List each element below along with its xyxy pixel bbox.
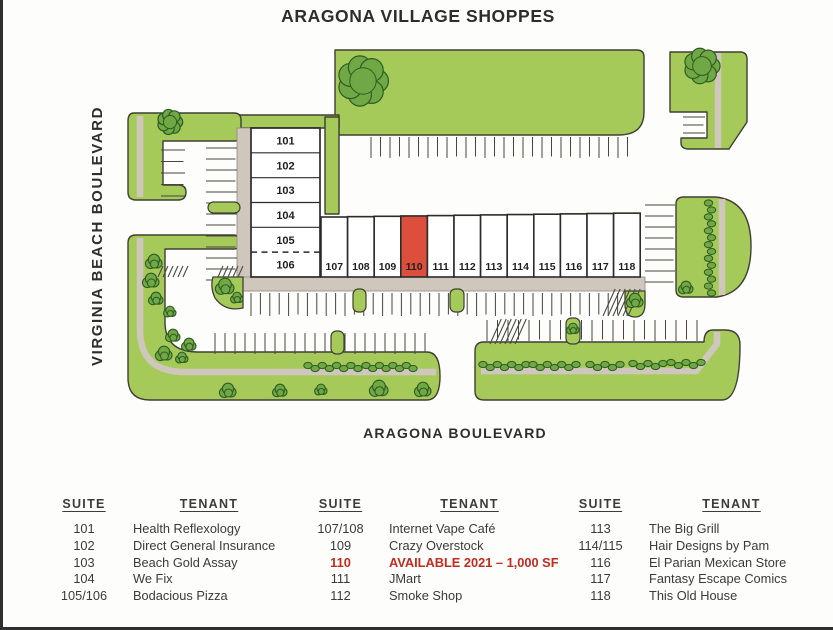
directory-row-available: 110AVAILABLE 2021 – 1,000 SF xyxy=(298,555,556,572)
suite-number: 102 xyxy=(41,538,127,555)
suite-label-107: 107 xyxy=(326,261,344,273)
hatch-line xyxy=(510,319,521,344)
bush-blob xyxy=(160,352,168,360)
street-label-virginia-beach-blvd: VIRGINIA BEACH BOULEVARD xyxy=(89,106,106,366)
tenant-name: JMart xyxy=(383,571,556,588)
hatch-line xyxy=(490,319,501,344)
directory-row: 109Crazy Overstock xyxy=(298,538,556,555)
lawn-divider-nub xyxy=(353,289,366,312)
directory-row: 102Direct General Insurance xyxy=(41,538,291,555)
suite-label-109: 109 xyxy=(379,261,397,273)
suite-number: 101 xyxy=(41,521,127,538)
hedge-blob xyxy=(572,361,580,367)
suite-column-header: SUITE xyxy=(558,497,643,512)
suite-label-115: 115 xyxy=(539,261,556,273)
tenant-name: This Old House xyxy=(643,588,820,605)
hatch-line xyxy=(603,289,615,316)
hatch-line xyxy=(515,319,526,344)
hatch-line xyxy=(183,266,188,277)
hedge-blob xyxy=(354,365,362,371)
tenant-name: Fantasy Escape Comics xyxy=(643,571,820,588)
tenant-name: Internet Vape Café xyxy=(383,521,556,538)
suite-number: 104 xyxy=(41,571,127,588)
hatch-line xyxy=(223,266,228,277)
hedge-blob xyxy=(704,255,712,261)
bush-blob xyxy=(221,285,230,294)
tenant-name: Crazy Overstock xyxy=(383,538,556,555)
hedge-blob xyxy=(707,248,715,254)
suite-number: 112 xyxy=(298,588,383,605)
bush-blob xyxy=(186,343,193,350)
tenant-name: Bodacious Pizza xyxy=(127,588,291,605)
suite-label-104: 104 xyxy=(276,210,295,222)
suite-label-105: 105 xyxy=(276,235,294,247)
tenant-name: AVAILABLE 2021 – 1,000 SF xyxy=(383,555,559,572)
suite-column-header: SUITE xyxy=(41,497,127,512)
suite-number: 103 xyxy=(41,555,127,572)
hedge-blob xyxy=(704,241,712,247)
hedge-blob xyxy=(704,228,712,234)
hatch-line xyxy=(505,319,516,344)
lawn-upper-left-bracket xyxy=(128,113,241,200)
directory-column-group: SUITETENANT113The Big Grill114/115Hair D… xyxy=(558,497,820,605)
hatch-line xyxy=(608,289,620,316)
tenant-name: Beach Gold Assay xyxy=(127,555,291,572)
bush-blob xyxy=(631,299,639,307)
directory-header-row: SUITETENANT xyxy=(41,497,291,512)
directory-row: 117Fantasy Escape Comics xyxy=(558,571,820,588)
hedge-blob xyxy=(707,276,715,282)
bush-blob xyxy=(683,286,690,293)
suite-number: 105/106 xyxy=(41,588,127,605)
tree-canopy-blob xyxy=(350,68,376,94)
directory-row: 113The Big Grill xyxy=(558,521,820,538)
hatch-line xyxy=(173,266,178,277)
directory-column-group: SUITETENANT101Health Reflexology102Direc… xyxy=(41,497,291,605)
tenant-column-header: TENANT xyxy=(383,497,556,512)
bush-blob xyxy=(419,388,427,396)
suite-label-102: 102 xyxy=(276,160,294,172)
hedge-blob xyxy=(616,361,624,367)
hatch-line xyxy=(500,319,511,344)
lawn-strip-behind-building xyxy=(325,117,339,214)
suite-label-116: 116 xyxy=(565,261,582,273)
tenant-name: El Parian Mexican Store xyxy=(643,555,820,572)
suite-label-112: 112 xyxy=(459,261,476,273)
hatch-line xyxy=(168,266,173,277)
tenant-name: Hair Designs by Pam xyxy=(643,538,820,555)
suite-label-118: 118 xyxy=(618,261,635,273)
street-label-aragona-blvd: ARAGONA BOULEVARD xyxy=(363,425,547,441)
bush-blob xyxy=(318,389,324,395)
directory-header-row: SUITETENANT xyxy=(558,497,820,512)
suite-column-header: SUITE xyxy=(298,497,383,512)
tenant-name: Health Reflexology xyxy=(127,521,291,538)
tenant-column-header: TENANT xyxy=(643,497,820,512)
hedge-row xyxy=(362,362,417,371)
tenant-name: The Big Grill xyxy=(643,521,820,538)
hatch-line xyxy=(613,289,625,316)
bush-blob xyxy=(170,334,177,341)
directory-column-group: SUITETENANT107/108Internet Vape Café109C… xyxy=(298,497,556,605)
hedge-blob xyxy=(697,359,705,365)
suite-label-108: 108 xyxy=(352,261,370,273)
directory-row: 107/108Internet Vape Café xyxy=(298,521,556,538)
suite-label-106: 106 xyxy=(276,260,294,272)
suite-number: 117 xyxy=(558,571,643,588)
bush-blob xyxy=(179,357,185,363)
tree xyxy=(685,48,720,84)
directory-header-row: SUITETENANT xyxy=(298,497,556,512)
suite-label-117: 117 xyxy=(592,261,609,273)
hatch-line xyxy=(228,266,233,277)
hedge-blob xyxy=(704,214,712,220)
hedge-blob xyxy=(409,365,417,371)
suite-label-103: 103 xyxy=(276,185,294,197)
suite-label-111: 111 xyxy=(433,261,450,273)
tenant-name: Smoke Shop xyxy=(383,588,556,605)
bush-blob xyxy=(150,260,158,268)
suite-number: 114/115 xyxy=(558,538,643,555)
tenant-column-header: TENANT xyxy=(127,497,291,512)
hedge-blob xyxy=(704,283,712,289)
bush-blob xyxy=(375,387,384,396)
bush-blob xyxy=(153,297,160,304)
hedge-blob xyxy=(707,207,715,213)
buildings: 1011021031041051061071081091101111121131… xyxy=(251,128,640,277)
hedge-blob xyxy=(707,290,715,296)
directory-row: 101Health Reflexology xyxy=(41,521,291,538)
suite-number: 111 xyxy=(298,571,383,588)
tree-canopy-blob xyxy=(693,57,712,76)
hatch-line xyxy=(495,319,506,344)
bush-blob xyxy=(147,279,155,287)
directory-row: 116El Parian Mexican Store xyxy=(558,555,820,572)
directory-row: 112Smoke Shop xyxy=(298,588,556,605)
suite-number: 116 xyxy=(558,555,643,572)
suite-label-113: 113 xyxy=(485,261,502,273)
directory-row: 103Beach Gold Assay xyxy=(41,555,291,572)
hedge-blob xyxy=(707,235,715,241)
hedge-blob xyxy=(707,221,715,227)
directory-row: 104We Fix xyxy=(41,571,291,588)
directory-row: 111JMart xyxy=(298,571,556,588)
bush-blob xyxy=(167,311,173,317)
bush-blob xyxy=(224,389,232,397)
bush-blob xyxy=(277,389,284,396)
hedge-blob xyxy=(704,200,712,206)
lawn-divider-nub xyxy=(208,202,240,213)
hedge-blob xyxy=(704,269,712,275)
hedge-blob xyxy=(659,360,667,366)
bush xyxy=(166,329,180,342)
scanned-site-plan-page: ARAGONA VILLAGE SHOPPES 1011021031041051… xyxy=(0,0,833,630)
site-plan-map: 1011021031041051061071081091101111121131… xyxy=(3,0,833,470)
suite-label-114: 114 xyxy=(512,261,529,273)
suite-number: 118 xyxy=(558,588,643,605)
hatch-line xyxy=(178,266,183,277)
sidewalk-storefront xyxy=(237,277,645,291)
lawn-divider-nub xyxy=(331,331,344,354)
suite-label-110: 110 xyxy=(406,261,423,273)
suite-number: 109 xyxy=(298,538,383,555)
hatch-line xyxy=(218,266,223,277)
tree-canopy-blob xyxy=(163,115,176,128)
suite-label-101: 101 xyxy=(276,135,294,147)
lawn-divider-nub xyxy=(450,289,464,312)
suite-number: 107/108 xyxy=(298,521,383,538)
bush-blob xyxy=(570,328,576,334)
hedge-blob xyxy=(707,262,715,268)
tenant-name: Direct General Insurance xyxy=(127,538,291,555)
directory-row: 118This Old House xyxy=(558,588,820,605)
suite-number: 110 xyxy=(298,555,383,572)
tree xyxy=(158,109,183,134)
suite-number: 113 xyxy=(558,521,643,538)
tenant-name: We Fix xyxy=(127,571,291,588)
bush-blob xyxy=(234,297,240,303)
bush xyxy=(182,338,196,351)
directory-row: 105/106Bodacious Pizza xyxy=(41,588,291,605)
directory-row: 114/115Hair Designs by Pam xyxy=(558,538,820,555)
